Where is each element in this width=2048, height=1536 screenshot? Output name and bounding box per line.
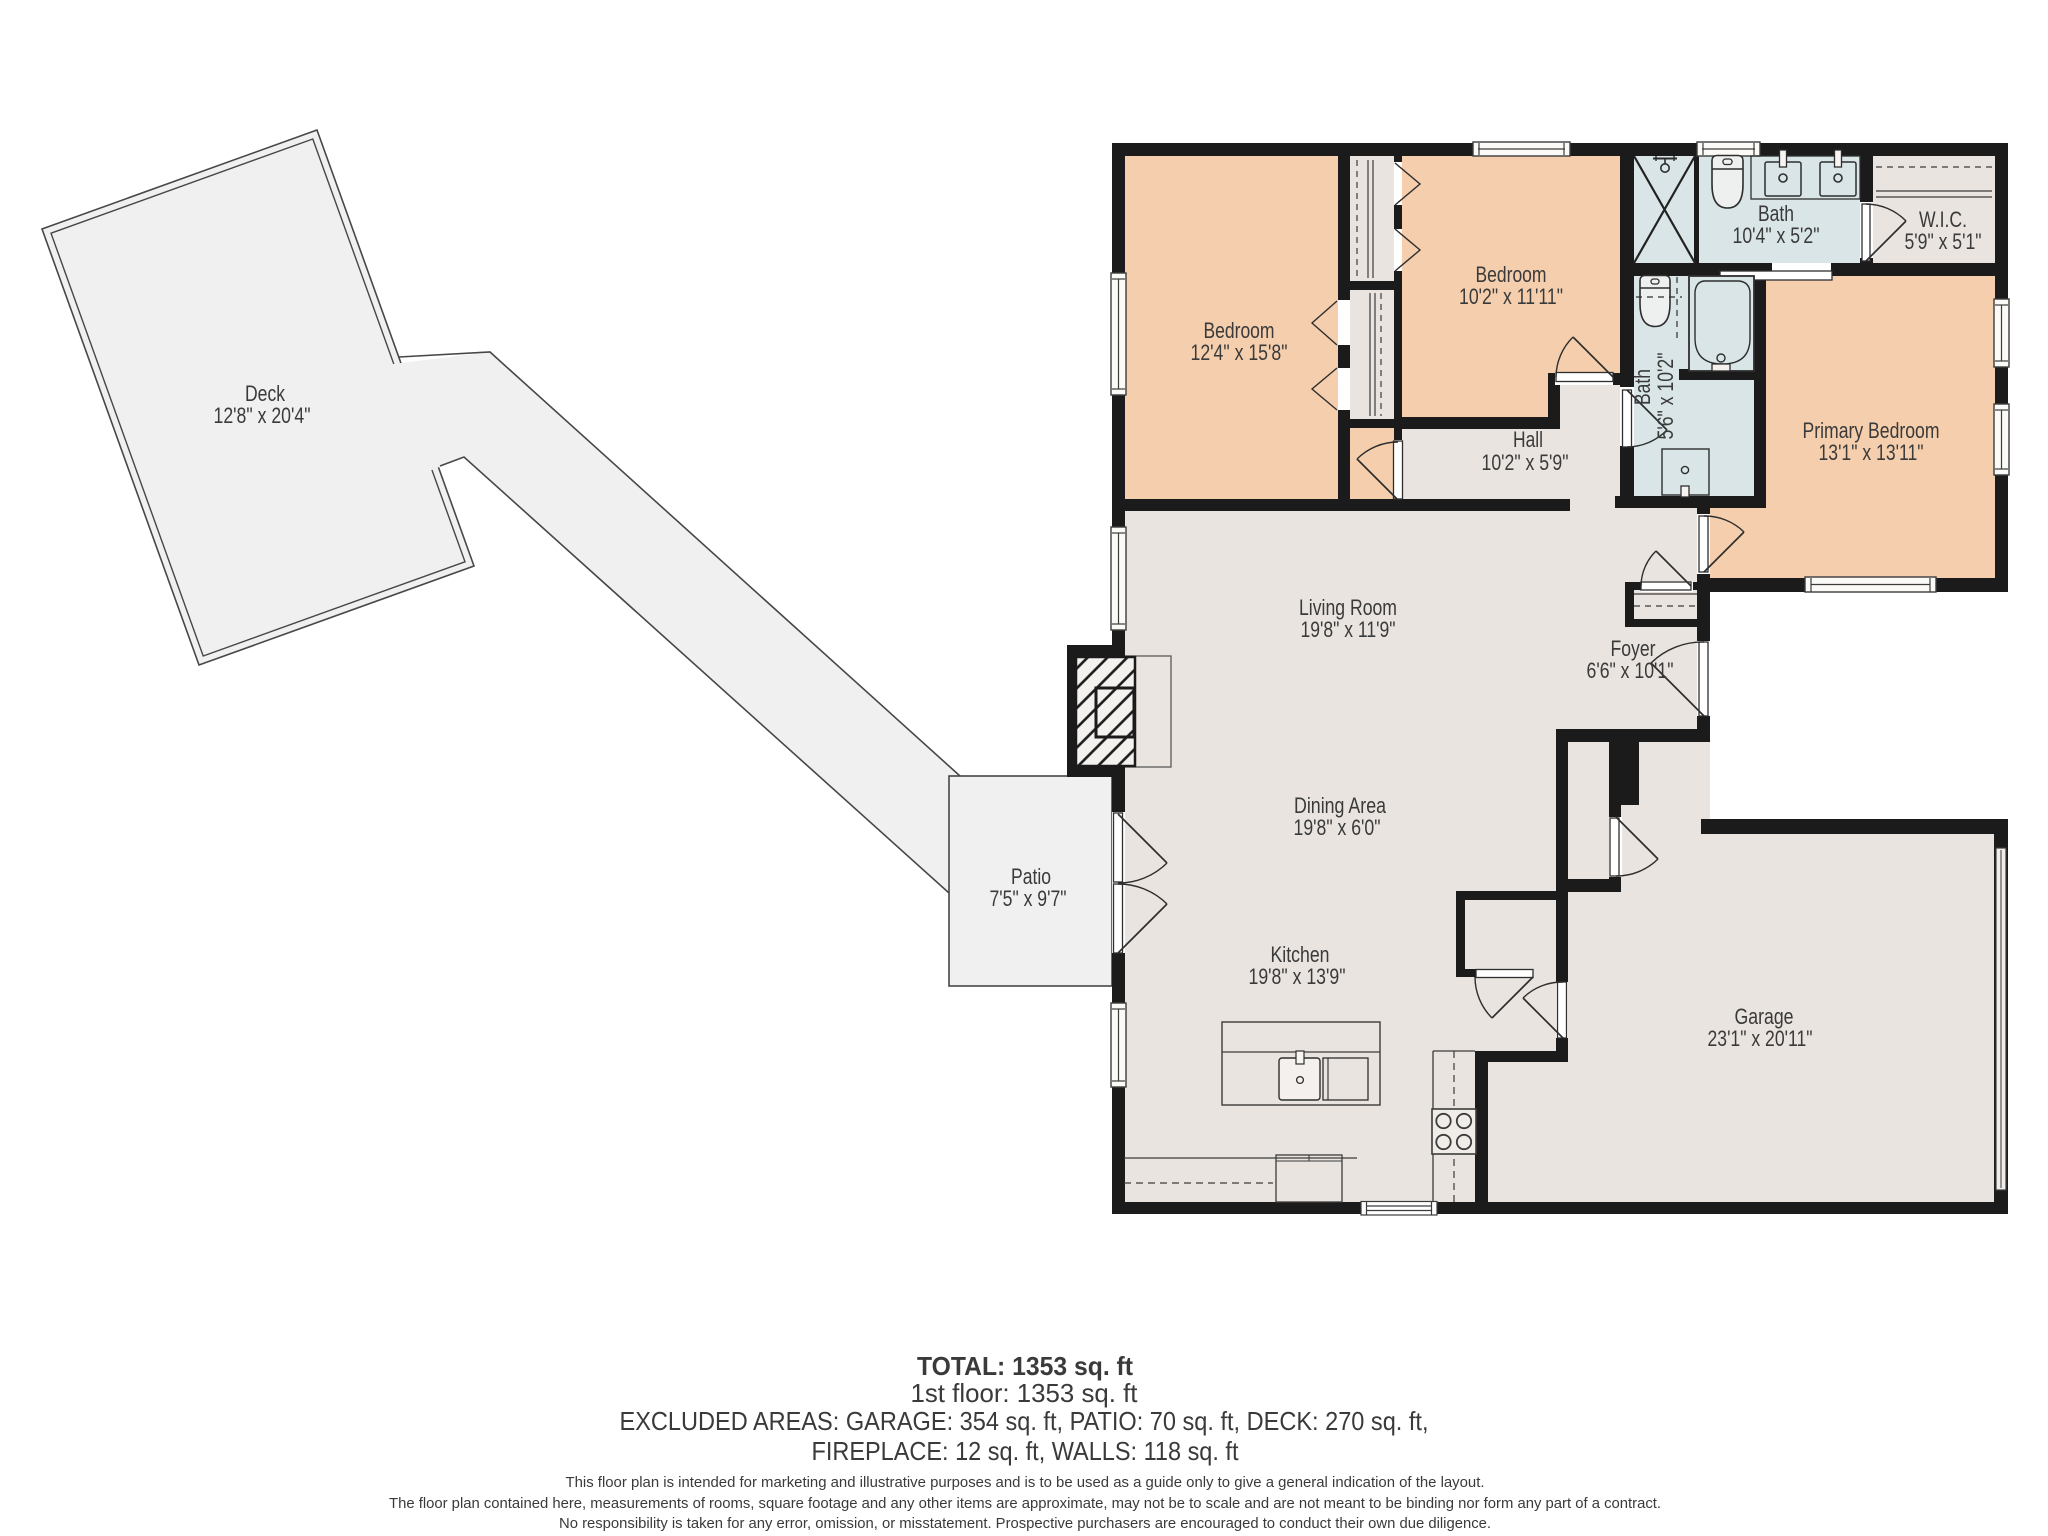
svg-text:6'6" x 10'1": 6'6" x 10'1"	[1587, 658, 1674, 683]
svg-text:FIREPLACE: 12 sq. ft, WALLS: 1: FIREPLACE: 12 sq. ft, WALLS: 118 sq. ft	[812, 1436, 1240, 1466]
svg-text:12'8" x 20'4": 12'8" x 20'4"	[214, 403, 311, 428]
svg-text:5'6" x 10'2": 5'6" x 10'2"	[1653, 353, 1678, 440]
svg-text:7'5" x 9'7": 7'5" x 9'7"	[990, 886, 1067, 911]
svg-text:13'1" x 13'11": 13'1" x 13'11"	[1819, 440, 1924, 465]
svg-text:1st floor: 1353 sq. ft: 1st floor: 1353 sq. ft	[911, 1378, 1139, 1408]
svg-text:10'4" x 5'2": 10'4" x 5'2"	[1733, 223, 1820, 248]
svg-text:5'9" x 5'1": 5'9" x 5'1"	[1905, 229, 1982, 254]
svg-text:EXCLUDED AREAS: GARAGE: 354 sq: EXCLUDED AREAS: GARAGE: 354 sq. ft, PATI…	[620, 1406, 1429, 1436]
svg-text:23'1" x 20'11": 23'1" x 20'11"	[1708, 1026, 1813, 1051]
svg-text:19'8" x 13'9": 19'8" x 13'9"	[1249, 964, 1346, 989]
svg-text:19'8" x 6'0": 19'8" x 6'0"	[1294, 815, 1381, 840]
svg-text:TOTAL: 1353 sq. ft: TOTAL: 1353 sq. ft	[917, 1351, 1133, 1381]
svg-text:The floor plan contained here,: The floor plan contained here, measureme…	[389, 1496, 1661, 1512]
svg-text:Hall: Hall	[1513, 427, 1543, 452]
svg-text:This floor plan is intended fo: This floor plan is intended for marketin…	[566, 1475, 1485, 1491]
svg-text:Bath: Bath	[1630, 369, 1655, 405]
svg-text:19'8" x 11'9": 19'8" x 11'9"	[1301, 617, 1396, 642]
svg-text:10'2" x 11'11": 10'2" x 11'11"	[1459, 284, 1563, 309]
svg-text:10'2" x 5'9": 10'2" x 5'9"	[1482, 450, 1569, 475]
svg-text:No responsibility is taken for: No responsibility is taken for any error…	[559, 1516, 1491, 1532]
svg-text:12'4" x 15'8": 12'4" x 15'8"	[1191, 340, 1288, 365]
